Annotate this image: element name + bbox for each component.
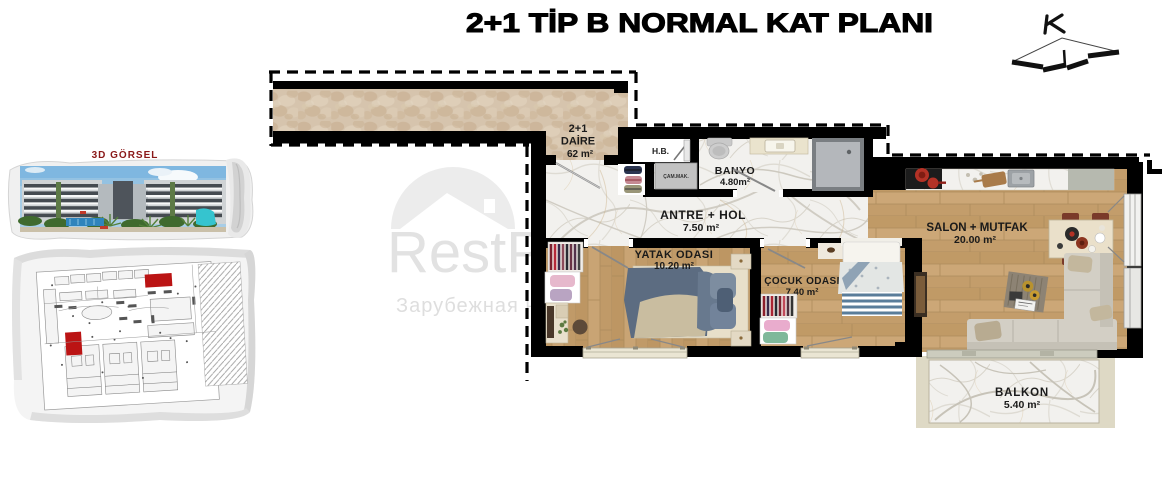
- svg-text:ANTRE + HOL: ANTRE + HOL: [660, 208, 746, 222]
- svg-text:2+1: 2+1: [569, 123, 588, 135]
- svg-text:3D GÖRSEL: 3D GÖRSEL: [92, 148, 159, 161]
- svg-text:20.00 m²: 20.00 m²: [954, 234, 997, 246]
- svg-text:62 m²: 62 m²: [567, 149, 594, 160]
- svg-text:5.40 m²: 5.40 m²: [1004, 399, 1041, 411]
- svg-text:ÇAM.MAK.: ÇAM.MAK.: [663, 174, 689, 180]
- svg-text:ÇOCUK ODASI: ÇOCUK ODASI: [764, 276, 840, 287]
- svg-text:H.B.: H.B.: [652, 146, 669, 156]
- svg-text:4.80m²: 4.80m²: [720, 177, 750, 188]
- svg-text:Зарубежная н: Зарубежная н: [396, 295, 537, 317]
- svg-text:7.50 m²: 7.50 m²: [683, 222, 720, 234]
- svg-text:10.20 m²: 10.20 m²: [654, 261, 695, 272]
- svg-text:2+1 TİP B NORMAL KAT PLANI: 2+1 TİP B NORMAL KAT PLANI: [466, 8, 933, 38]
- svg-text:DAİRE: DAİRE: [561, 135, 595, 148]
- svg-text:RestP: RestP: [387, 220, 545, 285]
- svg-text:BALKON: BALKON: [995, 387, 1049, 399]
- svg-text:SALON + MUTFAK: SALON + MUTFAK: [926, 222, 1028, 234]
- svg-text:YATAK ODASI: YATAK ODASI: [635, 249, 714, 261]
